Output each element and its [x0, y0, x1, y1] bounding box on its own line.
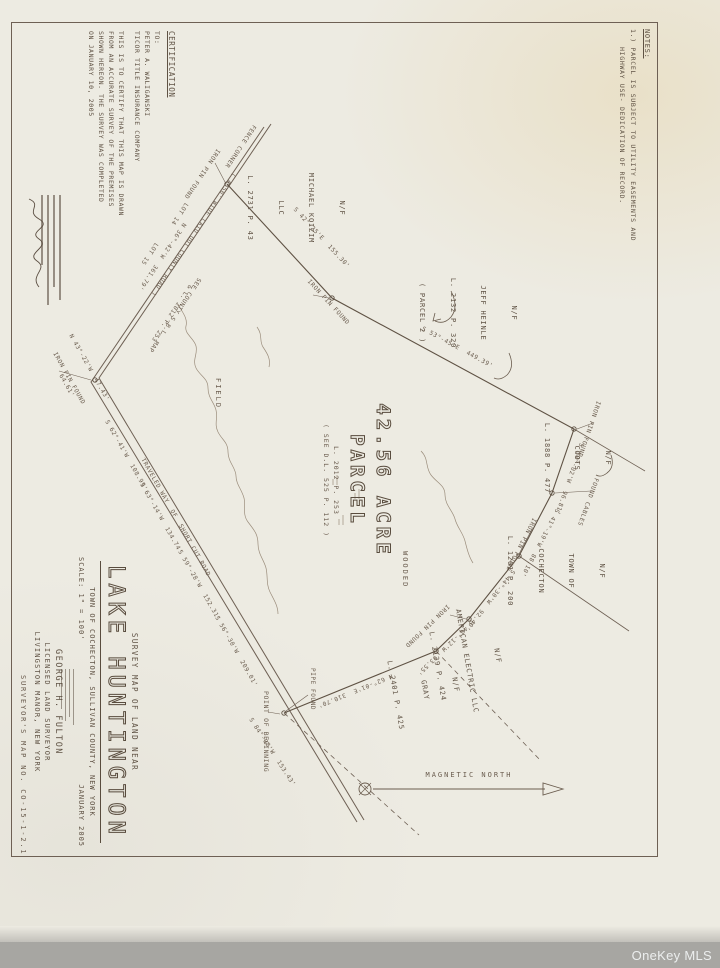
certification-heading: CERTIFICATION [165, 31, 177, 351]
owner-label-gray: N/F GRAY L. 2401 P. 425 [362, 636, 487, 744]
north-arrow [359, 783, 563, 795]
magnetic-north-label: MAGNETIC NORTH [389, 771, 549, 779]
map-location: TOWN OF COCHECTON, SULLIVAN COUNTY, NEW … [88, 551, 96, 853]
surveyor-stamp [15, 195, 65, 315]
map-canvas: NOTES: 1.) PARCEL IS SUBJECT TO UTILITY … [11, 22, 658, 857]
notes-item-cont: HIGHWAY USE- DEDICATION OF RECORD. [616, 29, 627, 339]
parcel-acreage: 42.56 ACRE [369, 388, 395, 573]
watermark-bar: OneKey MLS [0, 942, 720, 968]
certification-block: CERTIFICATION TO: PETER A. WALIGANSKI TI… [86, 31, 177, 351]
parcel-ref-deed: ( SEE D.L. 525 P. 112 ) [320, 388, 330, 573]
wooded-label: WOODED [401, 551, 409, 588]
title-block: SURVEY MAP OF LAND NEAR LAKE HUNTINGTON … [33, 551, 139, 853]
map-scale: SCALE: 1" = 100' [77, 557, 85, 640]
signature-squiggle [21, 195, 47, 315]
parcel-label: PARCEL [344, 388, 370, 573]
surveyors-map-number: SURVEYOR'S MAP NO. CO-15-1-2.1 [19, 675, 27, 855]
scan-edge-fade [0, 926, 720, 942]
notes-heading: NOTES: [640, 29, 652, 339]
watermark-text: OneKey MLS [632, 948, 720, 963]
monument-label: PIPE FOUND [309, 668, 315, 710]
parcel-ref-liber: L. 2012 P. 253 [330, 388, 340, 573]
map-subtitle: SURVEY MAP OF LAND NEAR [130, 551, 139, 853]
map-title: LAKE HUNTINGTON [100, 561, 128, 843]
paper-background: NOTES: 1.) PARCEL IS SUBJECT TO UTILITY … [0, 0, 720, 944]
surveyor-location: LIVINGSTON MANOR, NEW YORK [33, 551, 41, 853]
field-label: FIELD [214, 378, 222, 409]
map-date: JANUARY 2005 [77, 784, 85, 847]
notes-item: 1.) PARCEL IS SUBJECT TO UTILITY EASEMEN… [627, 29, 638, 339]
surveyor-title: LICENSED LAND SURVEYOR [43, 551, 51, 853]
parcel-title: 42.56 ACRE PARCEL L. 2012 P. 253 ( SEE D… [320, 388, 395, 573]
notes-block: NOTES: 1.) PARCEL IS SUBJECT TO UTILITY … [616, 29, 652, 339]
scanned-survey-page: NOTES: 1.) PARCEL IS SUBJECT TO UTILITY … [0, 0, 720, 968]
surveyor-address-lines [59, 669, 78, 727]
point-of-beginning-label: POINT OF BEGINNING [263, 691, 270, 772]
